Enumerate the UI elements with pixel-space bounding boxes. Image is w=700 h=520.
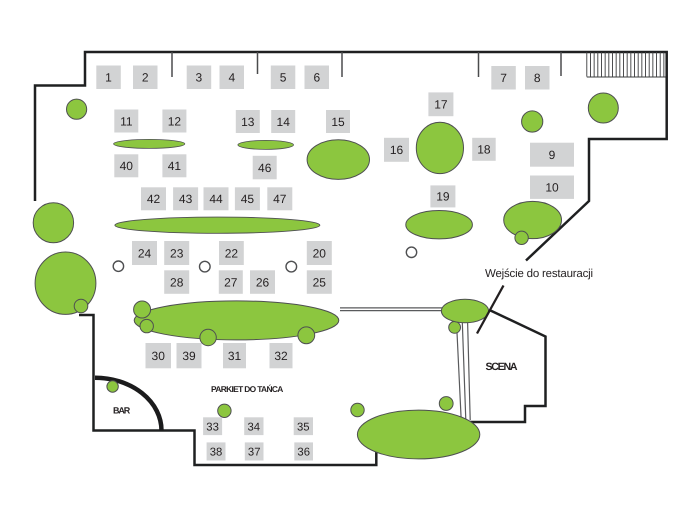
svg-text:36: 36 xyxy=(297,447,310,459)
svg-text:33: 33 xyxy=(206,421,219,433)
svg-text:Wejście do restauracji: Wejście do restauracji xyxy=(485,268,593,280)
svg-text:12: 12 xyxy=(168,114,182,128)
svg-text:28: 28 xyxy=(170,275,184,289)
svg-text:27: 27 xyxy=(224,275,238,289)
svg-text:8: 8 xyxy=(534,71,541,85)
svg-text:26: 26 xyxy=(256,275,270,289)
svg-text:BAR: BAR xyxy=(113,405,131,415)
svg-text:39: 39 xyxy=(182,349,196,363)
svg-text:17: 17 xyxy=(434,98,448,112)
svg-text:20: 20 xyxy=(313,246,327,260)
svg-text:30: 30 xyxy=(152,349,166,363)
svg-text:2: 2 xyxy=(142,71,149,85)
svg-text:40: 40 xyxy=(120,159,134,173)
svg-text:19: 19 xyxy=(436,190,450,204)
svg-text:10: 10 xyxy=(545,181,559,195)
svg-text:44: 44 xyxy=(209,192,223,206)
svg-text:32: 32 xyxy=(274,349,288,363)
svg-text:42: 42 xyxy=(147,192,161,206)
svg-text:23: 23 xyxy=(170,246,184,260)
svg-text:4: 4 xyxy=(228,71,235,85)
svg-text:7: 7 xyxy=(500,71,507,85)
svg-text:45: 45 xyxy=(241,192,255,206)
svg-text:14: 14 xyxy=(277,115,291,129)
svg-text:22: 22 xyxy=(225,246,239,260)
svg-text:1: 1 xyxy=(105,71,112,85)
svg-text:37: 37 xyxy=(248,447,261,459)
svg-text:34: 34 xyxy=(248,421,261,433)
svg-text:15: 15 xyxy=(331,115,345,129)
svg-text:41: 41 xyxy=(168,159,182,173)
svg-text:11: 11 xyxy=(120,114,133,128)
svg-text:9: 9 xyxy=(549,148,556,162)
svg-text:5: 5 xyxy=(280,71,287,85)
svg-text:35: 35 xyxy=(297,421,310,433)
svg-text:18: 18 xyxy=(477,143,491,157)
svg-text:PARKIET DO TAŃCA: PARKIET DO TAŃCA xyxy=(211,384,283,394)
svg-text:38: 38 xyxy=(210,447,223,459)
svg-text:43: 43 xyxy=(179,192,193,206)
svg-text:13: 13 xyxy=(241,115,255,129)
svg-text:SCENA: SCENA xyxy=(486,361,518,373)
svg-text:31: 31 xyxy=(228,349,242,363)
svg-text:25: 25 xyxy=(313,275,327,289)
svg-text:47: 47 xyxy=(273,192,287,206)
svg-text:16: 16 xyxy=(390,143,404,157)
svg-text:3: 3 xyxy=(196,71,203,85)
svg-text:46: 46 xyxy=(258,161,272,175)
svg-text:6: 6 xyxy=(313,71,320,85)
svg-text:24: 24 xyxy=(138,246,152,260)
